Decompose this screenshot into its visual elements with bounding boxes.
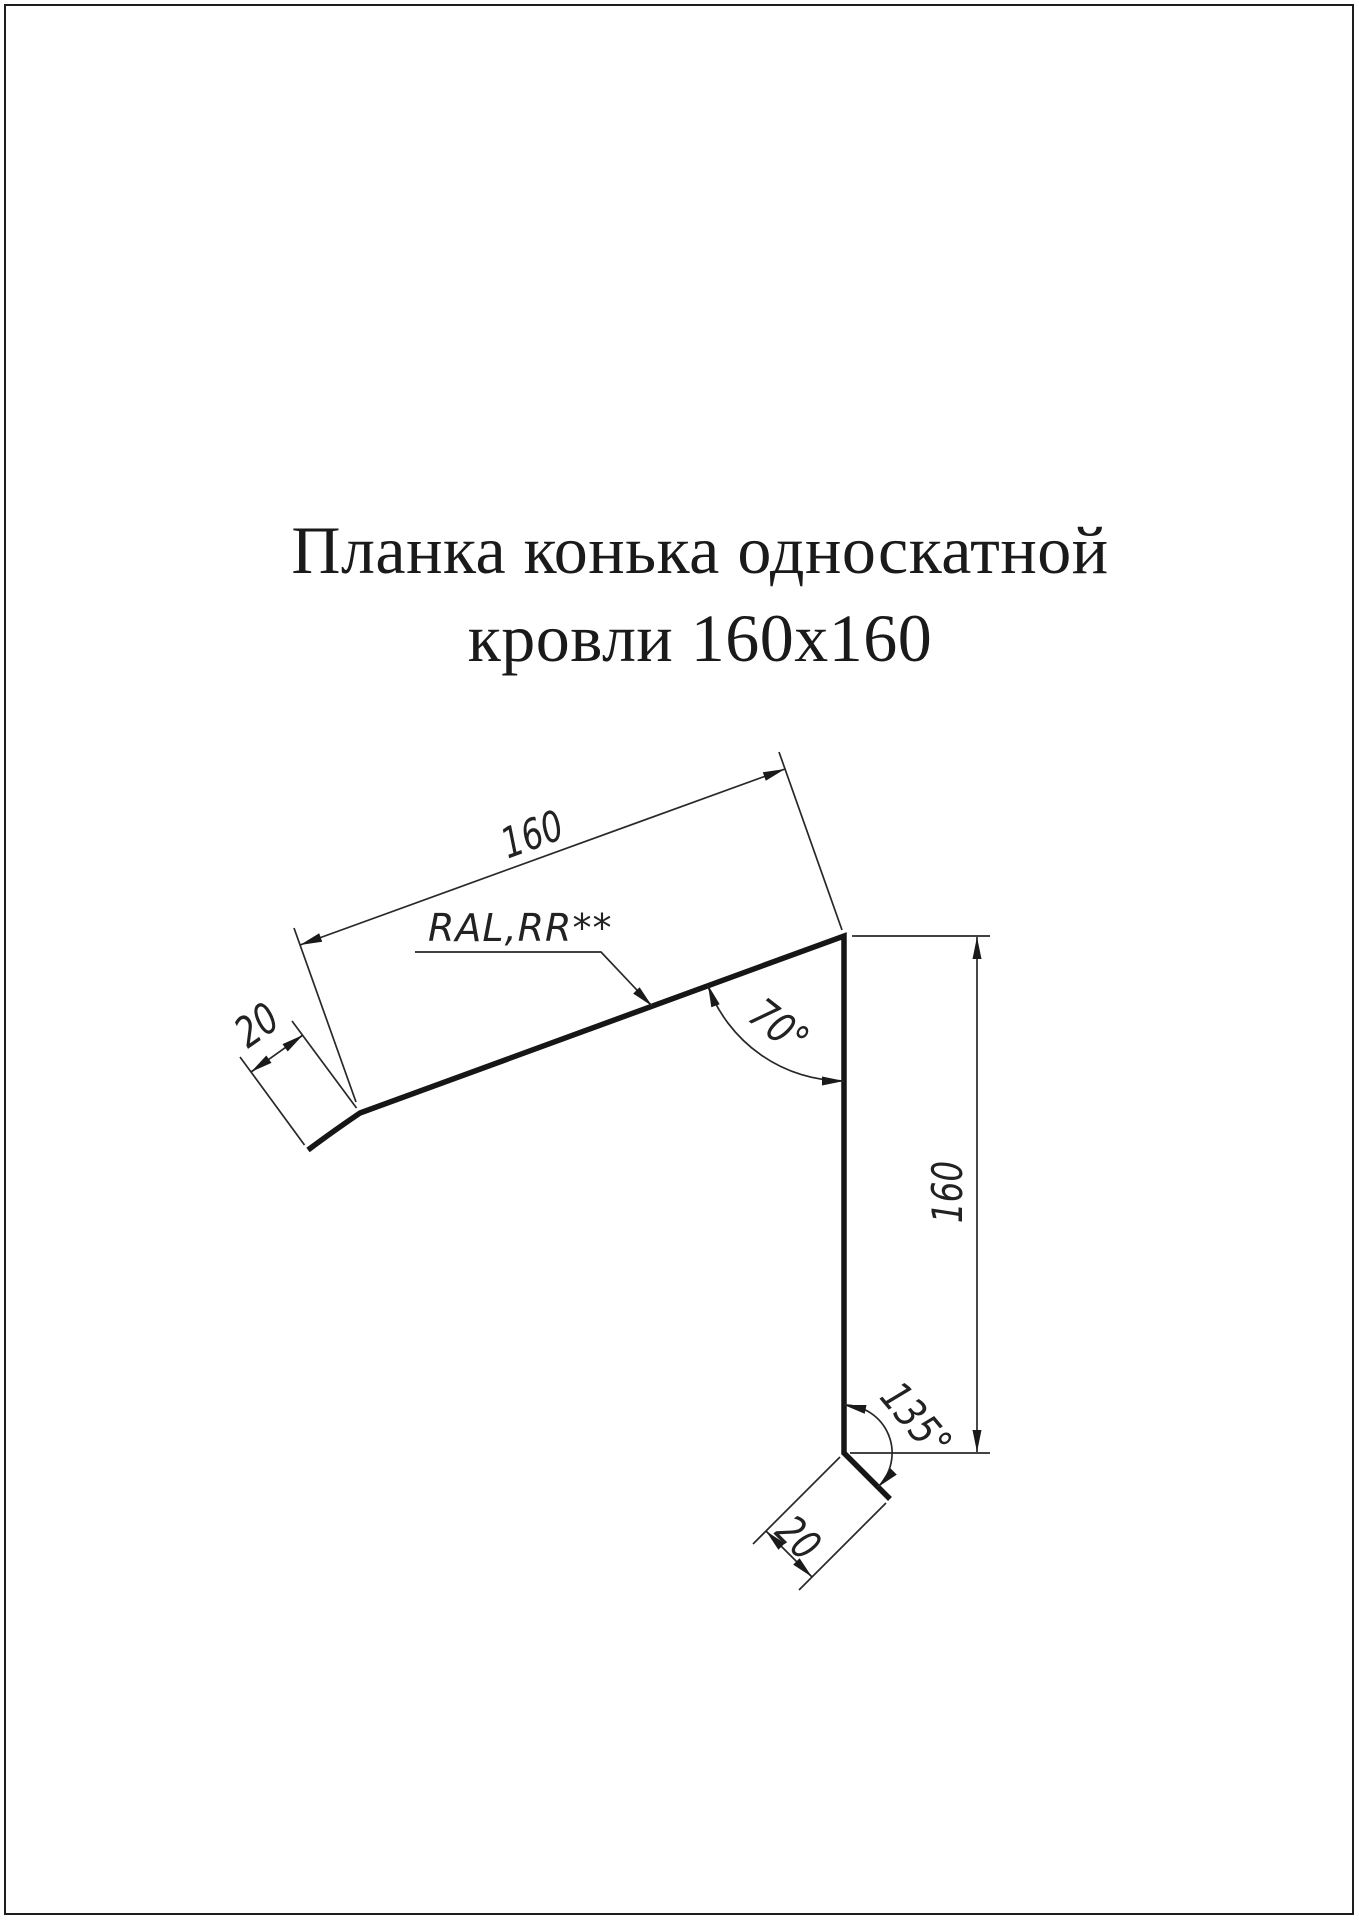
arc-arrow	[844, 1405, 867, 1414]
dimension-arrow	[283, 1035, 304, 1052]
dimension-arrow	[973, 937, 982, 959]
arc-arrow	[708, 985, 720, 1007]
material-label: RAL,RR**	[428, 906, 612, 950]
profile-drawing: 160 RAL,RR** 70° 160 135° 20	[0, 0, 1359, 1920]
extension-line	[779, 752, 842, 930]
dim-20-bottom-label: 20	[766, 1506, 830, 1570]
arc-arrow	[878, 1468, 897, 1487]
arc-arrow	[822, 1077, 844, 1086]
drawing-sheet: Планка конька односкатной кровли 160х160…	[0, 0, 1359, 1920]
dim-160-top-label: 160	[494, 801, 570, 868]
extension-line	[240, 1057, 305, 1145]
dimension-arrow	[251, 1056, 272, 1073]
dim-20-top-label: 20	[226, 993, 288, 1057]
angle-70-label: 70°	[739, 989, 817, 1065]
dimension-arrow	[300, 933, 322, 945]
dim-160-right-label: 160	[923, 1161, 972, 1224]
dimension-arrow	[763, 769, 785, 781]
leader-line	[415, 952, 652, 1006]
dimension-arrow	[973, 1430, 982, 1452]
extension-line	[292, 1021, 357, 1108]
extension-line	[294, 928, 356, 1102]
